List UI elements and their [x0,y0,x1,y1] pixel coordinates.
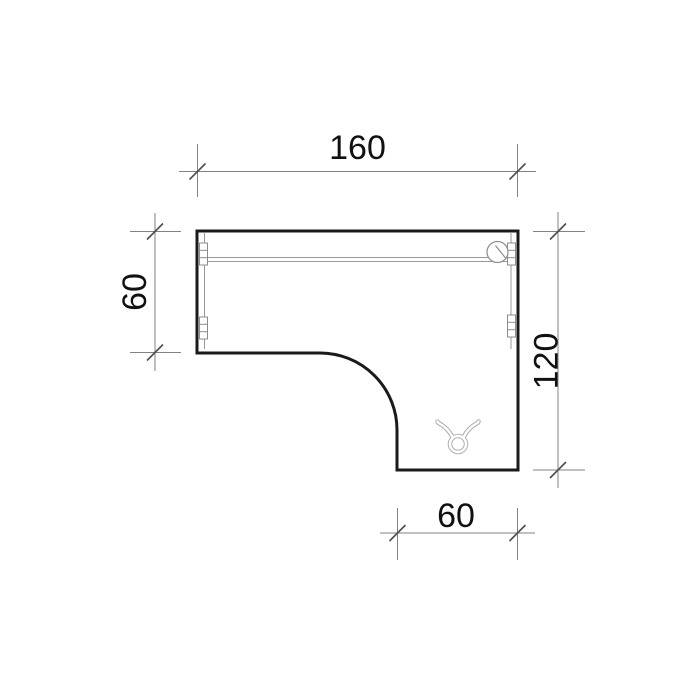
connector-body [200,243,208,265]
cable-grommet-icon [487,242,508,263]
connector-body [508,315,516,337]
drawing-canvas: 160 60 120 60 [0,0,700,700]
desk-plan-drawing: 160 60 120 60 [0,0,700,700]
desk-outline [197,231,518,470]
connector-left-bottom [200,317,208,339]
dimension-top-width: 160 [179,129,536,197]
connector-left-top [200,243,208,265]
connector-body [508,243,516,265]
grommet-circle [487,242,508,263]
dimension-bottom-width: 60 [380,497,535,560]
dimension-label-right: 120 [528,333,566,390]
dimension-label-left: 60 [116,273,154,311]
connector-body [200,317,208,339]
dimension-label-top: 160 [329,129,386,167]
connector-right-top [508,243,516,265]
dimension-label-bottom: 60 [437,497,475,535]
dimension-left-height: 60 [116,213,181,371]
dimension-right-height: 120 [528,212,586,488]
connector-right-bottom [508,315,516,337]
